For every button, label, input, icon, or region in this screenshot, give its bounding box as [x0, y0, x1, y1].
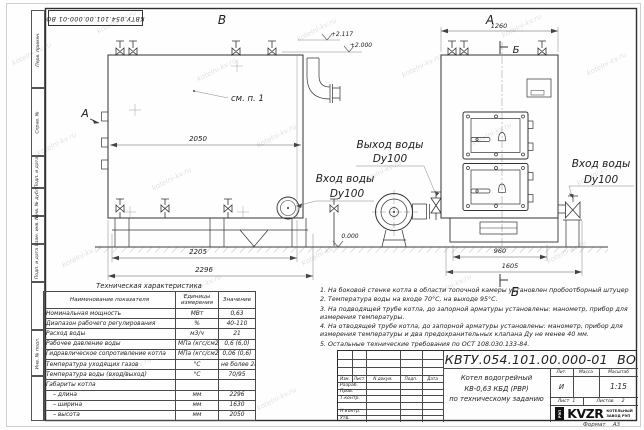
note-item: 1. На боковой стенке котла в области топ…	[320, 287, 637, 295]
lower-door	[463, 164, 533, 211]
margin-label: Подп. и дата	[36, 156, 41, 187]
param-name: – длина	[44, 390, 176, 400]
safety-valves-top	[116, 41, 546, 55]
drawing-labels: В А Б Б А см. п. 1 2050 2205 2296 1260 9…	[80, 13, 630, 299]
tb-row-empty	[338, 402, 365, 409]
param-name: Гидравлическое сопротивление котла	[44, 349, 176, 359]
param-value: 40-110	[219, 319, 256, 329]
logo-mark: РЭП	[555, 407, 564, 420]
param-unit: %	[176, 319, 219, 329]
outlet-valve	[431, 192, 441, 220]
tb-col-list: Лист	[352, 375, 366, 382]
param-name: Номинальная мощность	[44, 309, 176, 319]
col-header: Единицы измерения	[176, 292, 219, 309]
technical-notes: 1. На боковой стенке котла в области топ…	[320, 287, 637, 350]
tb-row-tkontr: Т.контр.	[338, 395, 365, 402]
dim-2296: 2296	[195, 266, 213, 274]
param-unit: °С	[176, 359, 219, 369]
param-name: Диапазон рабочего регулирования	[44, 319, 176, 329]
margin-box-perv-primen: Перв. примен.	[31, 10, 45, 88]
tb-col-data: Дата	[422, 375, 443, 382]
param-name: Температура воды (вход/выход)	[44, 370, 176, 380]
base-plinth	[450, 218, 558, 242]
tb-sheets-cell: Листов 2	[583, 397, 638, 405]
title-block: Изм. Лист N докум. Подп. Дата Разраб. Пр…	[337, 350, 637, 421]
param-unit: м3/ч	[176, 329, 219, 339]
dim-1260: 1260	[491, 22, 508, 30]
section-label-b-top: Б	[513, 45, 520, 56]
margin-box-sprav: Справ. №	[31, 88, 45, 156]
table-row: – высотамм2050	[44, 410, 256, 420]
param-name: Габариты котла	[44, 380, 176, 390]
sheet-label: Лист	[558, 399, 570, 404]
ground-line	[95, 247, 608, 253]
param-name: – ширина	[44, 400, 176, 410]
table-row: – длинамм2296	[44, 390, 256, 400]
margin-label: Взам. инв. №	[36, 214, 41, 245]
note-item: 3. На подводящей трубе котла, до запорно…	[320, 306, 637, 323]
elevation-2000: +2.000	[350, 42, 372, 49]
nameplate	[527, 79, 551, 97]
tb-row-utv: Утв.	[338, 415, 365, 422]
boiler-side-view	[102, 55, 341, 247]
document-name: Котел водогрейный КВ-0,63 КБД (РВР) по т…	[443, 368, 550, 410]
doc-name-line: КВ-0,63 КБД (РВР)	[464, 384, 528, 395]
param-unit: °С	[176, 370, 219, 380]
document-designation: КВТУ.054.101.00.000-01 ВО	[443, 351, 638, 368]
param-name: – высота	[44, 410, 176, 420]
inlet-flange	[277, 197, 299, 219]
param-value	[219, 380, 256, 390]
format-note: ФорматА3	[583, 422, 627, 428]
logo-mark-text: РЭП	[558, 409, 562, 417]
top-stamp: КВТУ.054.101.00.000-01 ВО	[48, 10, 143, 26]
tb-mass-header: Масса	[573, 368, 599, 376]
margin-label: Инв. № подл.	[36, 337, 41, 369]
inlet-valve-right	[566, 202, 581, 218]
manufacturer-logo: РЭП KVZR КОТЕЛЬНЫЙ ЗАВОД РЭП	[550, 405, 638, 422]
tb-lit-value: И	[550, 376, 573, 397]
tb-col-podp: Подп.	[400, 375, 422, 382]
tech-header-row: Наименование показателя Единицы измерени…	[44, 292, 256, 309]
inlet-water-label-left: Вход воды	[316, 173, 375, 185]
margin-label: Справ. №	[36, 111, 41, 133]
dim-2205: 2205	[189, 248, 207, 256]
boiler-front-view	[441, 42, 582, 252]
param-value: 0,63	[219, 309, 256, 319]
tech-table: Наименование показателя Единицы измерени…	[43, 291, 256, 421]
param-value: 1630	[219, 400, 256, 410]
tb-col-izm: Изм.	[338, 375, 352, 382]
param-value: 2296	[219, 390, 256, 400]
elevation-2117: +2.117	[331, 31, 353, 38]
margin-label: Подп. и дата	[36, 247, 41, 278]
param-unit: МПа (кгс/см2)	[176, 339, 219, 349]
margin-box-podp-data-2: Подп. и дата	[31, 244, 45, 282]
param-value: 70/95	[219, 370, 256, 380]
table-row: Расход водым3/ч21	[44, 329, 256, 339]
outlet-water-label: Выход воды	[357, 139, 424, 151]
param-value: не более 280	[219, 359, 256, 369]
elevation-marks	[322, 34, 354, 247]
view-label-b: В	[218, 13, 226, 27]
table-row: Температура воды (вход/выход)°С70/95	[44, 370, 256, 380]
param-unit: МВт	[176, 309, 219, 319]
flue-elbow	[307, 58, 340, 103]
dim-1605: 1605	[502, 262, 519, 270]
drain-valves-bottom	[116, 199, 338, 246]
sheets-value: 2	[622, 399, 625, 404]
tb-scale-header: Масштаб	[599, 368, 638, 376]
support-frame	[112, 218, 308, 247]
side-lugs	[102, 112, 109, 169]
tb-row-nkontr: Н.контр.	[338, 409, 365, 416]
door-lever	[471, 189, 490, 193]
inlet-water-label-right: Вход воды	[572, 158, 631, 170]
param-value: 0,06 (0,6)	[219, 349, 256, 359]
margin-box-vzam-inv: Взам. инв. №	[31, 216, 45, 244]
param-value: 0,6 (6,0)	[219, 339, 256, 349]
table-row: Рабочее давление водыМПа (кгс/см2)0,6 (6…	[44, 339, 256, 349]
drawing-sheet: kotelni-kv.ru kotelni-kv.ru kotelni-kv.r…	[0, 0, 644, 430]
tb-sheet-cell: Лист 1	[550, 397, 583, 405]
logo-sub-line: ЗАВОД РЭП	[606, 414, 632, 418]
inlet-water-dn-left: Dy100	[330, 188, 365, 200]
tech-table-title: Техническая характеристика	[43, 282, 255, 291]
table-row: Диапазон рабочего регулирования%40-110	[44, 319, 256, 329]
tb-row-razrab: Разраб.	[338, 382, 365, 389]
elevation-0000: 0.000	[341, 233, 358, 240]
tb-scale-value: 1:15	[599, 376, 638, 397]
view-arrow-label-a: А	[80, 107, 89, 120]
door-lever	[471, 138, 490, 142]
dim-960: 960	[494, 247, 506, 255]
param-unit	[176, 380, 219, 390]
logo-name: KVZR	[567, 406, 603, 421]
col-header: Наименование показателя	[44, 292, 176, 309]
note-item: 5. Остальные технические требования по О…	[320, 341, 637, 349]
sheets-label: Листов	[596, 399, 613, 404]
doc-name-line: по техническому заданию	[449, 394, 544, 405]
note-item: 2. Температура воды на входе 70°С, на вы…	[320, 296, 637, 304]
param-unit: мм	[176, 390, 219, 400]
tech-characteristics: Техническая характеристика Наименование …	[43, 282, 255, 421]
format-value: А3	[613, 422, 620, 428]
margin-label: Инв. № дубл.	[36, 186, 41, 217]
dim-2050: 2050	[189, 135, 207, 143]
tb-row-prov: Пров.	[338, 389, 365, 396]
margin-label: Перв. примен.	[36, 32, 41, 67]
sheet-value: 1	[572, 399, 575, 404]
param-name: Рабочее давление воды	[44, 339, 176, 349]
param-unit: МПа (кгс/см2)	[176, 349, 219, 359]
margin-box-inv-dubl: Инв. № дубл.	[31, 188, 45, 216]
inlet-water-dn-right: Dy100	[584, 174, 619, 186]
see-note-callout: см. п. 1	[231, 94, 264, 104]
burner-blower	[372, 190, 430, 247]
tb-lit-header: Лит.	[550, 368, 573, 376]
margin-box-podp-data-1: Подп. и дата	[31, 156, 45, 188]
param-name: Температура уходящих газов	[44, 359, 176, 369]
dimension-arrows	[92, 29, 582, 278]
table-row: Габариты котла	[44, 380, 256, 390]
table-row: Гидравлическое сопротивление котлаМПа (к…	[44, 349, 256, 359]
param-unit: мм	[176, 410, 219, 420]
param-unit: мм	[176, 400, 219, 410]
table-row: – ширинамм1630	[44, 400, 256, 410]
tb-col-docnum: N докум.	[366, 375, 400, 382]
param-value: 2050	[219, 410, 256, 420]
table-row: Температура уходящих газов°Сне более 280	[44, 359, 256, 369]
col-header: Значение	[219, 292, 256, 309]
param-name: Расход воды	[44, 329, 176, 339]
upper-door	[463, 112, 533, 159]
format-label: Формат	[583, 422, 606, 428]
doc-name-line: Котел водогрейный	[461, 373, 532, 384]
param-value: 21	[219, 329, 256, 339]
outlet-water-dn: Dy100	[373, 153, 408, 165]
table-row: Номинальная мощностьМВт0,63	[44, 309, 256, 319]
top-stamp-text: КВТУ.054.101.00.000-01 ВО	[46, 15, 145, 22]
logo-subtitle: КОТЕЛЬНЫЙ ЗАВОД РЭП	[606, 409, 632, 418]
note-item: 4. На отводящей трубе котла, до запорной…	[320, 323, 637, 340]
